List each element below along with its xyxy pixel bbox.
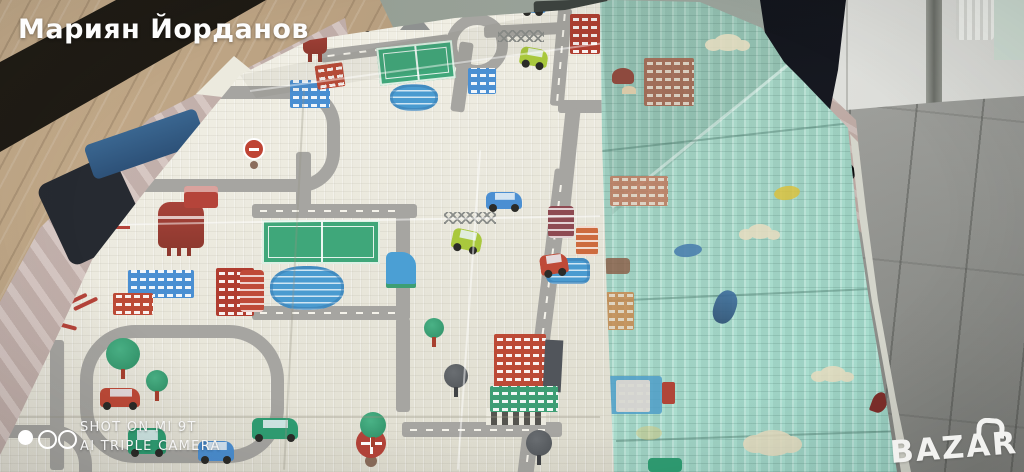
bird-icon xyxy=(673,243,702,259)
car xyxy=(539,252,570,276)
door-frame-seam xyxy=(926,0,942,110)
building-icon xyxy=(610,176,668,206)
stain xyxy=(636,426,662,440)
bag-handle-icon xyxy=(976,417,1005,439)
mat-seam xyxy=(0,416,600,418)
shot-on-watermark: SHOT ON MI 9T AI TRIPLE CAMERA xyxy=(80,419,221,457)
swimming-pool xyxy=(390,84,438,111)
bird-icon xyxy=(773,184,801,201)
photo-listing-image: Мариян Йорданов SHOT ON MI 9T AI TRIPLE … xyxy=(0,0,1024,472)
mat-seam xyxy=(606,288,872,302)
building-shadow-side xyxy=(543,340,564,393)
tree xyxy=(424,318,444,338)
building-icon xyxy=(644,58,694,106)
cloud-icon xyxy=(752,430,794,456)
apartment-building xyxy=(113,293,153,315)
road xyxy=(396,318,410,412)
mushroom-icon xyxy=(612,68,634,84)
road xyxy=(252,204,417,218)
car xyxy=(100,388,140,407)
car xyxy=(252,418,298,439)
camera-dot-filled xyxy=(18,430,33,445)
gas-station xyxy=(184,186,218,208)
camera-dot-outline xyxy=(38,430,57,449)
road xyxy=(252,306,410,320)
truck xyxy=(576,226,598,256)
bus-icon xyxy=(648,458,682,472)
tree xyxy=(106,338,140,370)
van xyxy=(486,192,522,209)
building-icon xyxy=(616,380,650,412)
playground-slide xyxy=(386,252,416,284)
building-icon xyxy=(606,292,634,330)
tennis-court xyxy=(262,220,380,264)
car-icon xyxy=(604,258,630,274)
apartment-building xyxy=(494,334,546,390)
wall-panel xyxy=(994,0,1024,60)
kiosk xyxy=(468,68,496,94)
author-watermark: Мариян Йорданов xyxy=(18,14,309,45)
cloud-icon xyxy=(714,34,742,51)
cloud-icon xyxy=(820,366,846,382)
playground-slide xyxy=(240,270,264,312)
door-frame-line xyxy=(846,0,848,110)
swimming-pool xyxy=(270,266,344,310)
tree xyxy=(526,430,552,456)
shot-on-line1: SHOT ON MI 9T xyxy=(80,419,221,438)
door-icon xyxy=(662,382,675,404)
cloud-icon xyxy=(748,224,772,239)
radiator xyxy=(956,0,994,40)
apartment-building xyxy=(490,386,558,412)
water-tower xyxy=(158,202,204,248)
tree xyxy=(146,370,168,392)
shot-on-line2: AI TRIPLE CAMERA xyxy=(80,438,221,457)
no-entry-sign xyxy=(243,138,265,160)
camera-dot-outline xyxy=(58,430,77,449)
truck xyxy=(548,206,574,238)
